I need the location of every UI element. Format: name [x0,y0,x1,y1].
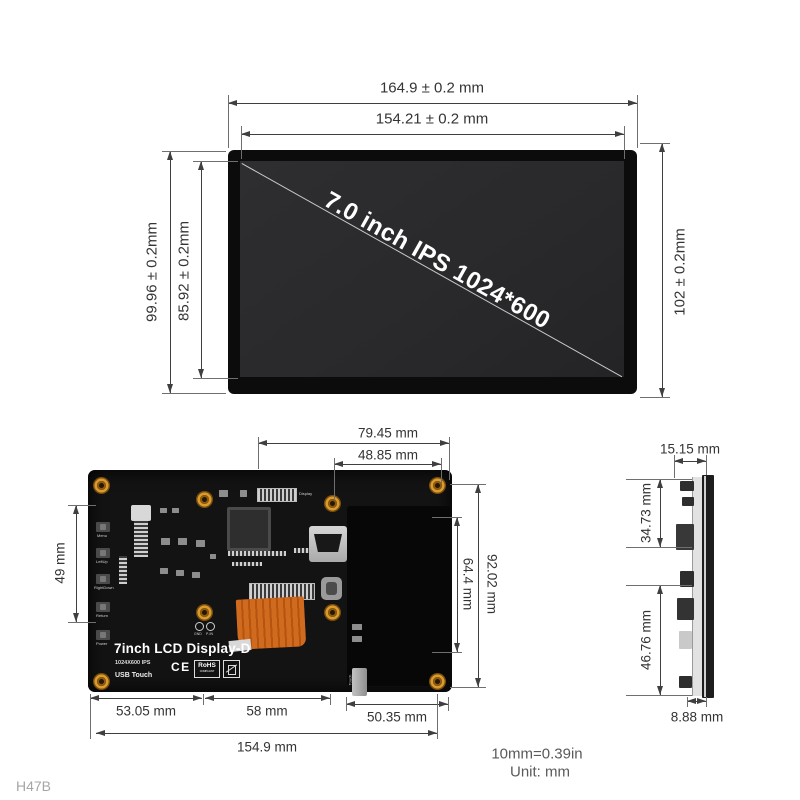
extension-line [432,652,462,653]
side-connector [679,631,692,649]
button-return-label: Return [96,614,108,618]
dim-line-width-inner [241,134,624,135]
pad-row [119,556,127,584]
dim-line-back-bottom-left [90,698,202,699]
smd-part [160,508,167,513]
back-view: Menu LeftUp RightDown Return Power Displ… [0,410,560,800]
dim-label-back-left: 49 mm [53,542,68,583]
hdmi-opening [314,534,342,552]
dim-label-back-top-outer: 79.45 mm [358,426,418,441]
side-connector [677,598,694,620]
standoff [324,495,341,512]
weee-mark [223,660,240,678]
rohs-text: RoHS [195,661,219,670]
dim-line-back-top-inner [334,464,441,465]
button-power [96,630,110,640]
extension-line [624,126,625,159]
extension-line [637,95,638,148]
button-power-label: Power [96,642,107,646]
dim-label-height-right: 102 ± 0.2mm [672,228,689,315]
smd-part [352,624,362,630]
side-view: 15.15 mm 34.73 mm 46.76 mm 8.88 mm [600,410,800,800]
dim-label-side-bottom: 8.88 mm [671,710,724,725]
extension-line [441,458,442,483]
dim-line-back-bottom-right [346,704,448,705]
gnd-label: GND [194,632,202,636]
dim-line-height-outer-left [170,151,171,393]
lcd-panel-back [347,506,450,686]
button-up [96,548,110,558]
dim-line-width-outer [228,103,637,104]
button-menu-label: Menu [97,534,107,538]
button-up-label: LeftUp [96,560,108,564]
dim-line-height-inner-left [201,161,202,378]
dim-line-side-bottom [687,701,706,702]
dim-label-height-outer-left: 99.96 ± 0.2mm [144,222,161,322]
extension-line [640,397,670,398]
extension-line [162,151,226,152]
extension-line [258,437,259,469]
button-menu [96,522,110,532]
footnote-unit: Unit: mm [510,764,570,781]
dim-label-width-outer: 164.9 ± 0.2 mm [380,80,484,97]
product-dimension-diagram: 7.0 inch IPS 1024*600 164.9 ± 0.2 mm 154… [0,0,800,800]
dim-line-back-bottom-mid [205,698,330,699]
extension-line [626,547,692,548]
extension-line [448,697,449,711]
dim-line-side-upper [660,479,661,547]
side-panel-highlight [704,476,706,697]
side-connector [680,481,694,491]
extension-line [193,161,238,162]
dim-line-back-right-inner [457,517,458,652]
dim-line-side-lower [660,585,661,695]
dim-line-back-right-outer [478,484,479,687]
board-touch: USB Touch [115,672,152,679]
dim-label-back-bottom-total: 154.9 mm [237,740,297,755]
standoff [324,604,341,621]
dim-label-width-inner: 154.21 ± 0.2 mm [376,111,488,128]
backlight-connector [131,505,151,521]
touch-usb-label: Touch [348,675,352,686]
extension-line [90,694,91,739]
extension-line [450,687,486,688]
extension-line [162,393,226,394]
extension-line [334,458,335,500]
rohs-sub-text: COMPLIANT [195,670,219,673]
dim-label-back-bottom-left: 53.05 mm [116,704,176,719]
front-view: 7.0 inch IPS 1024*600 164.9 ± 0.2 mm 154… [0,0,800,430]
dim-line-height-right [662,143,663,397]
rohs-mark: RoHS COMPLIANT [194,660,220,678]
standoff [93,673,110,690]
smd-part [210,554,216,559]
smd-part [176,570,184,576]
pad-row [232,562,262,566]
dim-label-side-upper: 34.73 mm [639,483,654,543]
ce-mark: CE [171,660,191,674]
pin-pad [206,622,215,631]
dim-label-back-bottom-right: 50.35 mm [367,710,427,725]
display-fpc-label: Display [299,492,312,496]
extension-line [432,517,462,518]
dim-label-side-lower: 46.76 mm [639,610,654,670]
button-down [96,574,110,584]
extension-line [640,143,670,144]
standoff [93,477,110,494]
smd-part [172,508,179,513]
extension-line [450,484,486,485]
smd-part [161,538,170,545]
extension-line [626,479,692,480]
standoff [196,604,213,621]
button-down-label: RightDown [94,586,114,590]
standoff [196,491,213,508]
extension-line [437,694,438,739]
extension-line [241,126,242,159]
side-connector [679,676,692,688]
extension-line [674,455,675,478]
smd-part [196,540,205,547]
side-connector [682,497,694,506]
extension-line [203,694,204,705]
touch-usb-port [352,668,367,696]
dim-label-back-bottom-mid: 58 mm [246,704,287,719]
extension-line [449,437,450,480]
footnote-conversion: 10mm=0.39in [491,746,582,763]
extension-line [228,95,229,148]
dim-label-side-top: 15.15 mm [660,442,720,457]
dim-label-height-inner-left: 85.92 ± 0.2mm [176,221,193,321]
dim-line-side-top [674,461,706,462]
smd-part [219,490,228,497]
smd-part [160,568,168,574]
dim-label-back-top-inner: 48.85 mm [358,448,418,463]
extension-line [193,378,238,379]
extension-line [706,697,707,707]
driver-chip [227,507,271,551]
smd-part [178,538,187,545]
pad-row [228,551,286,556]
dim-label-back-right-inner: 64.4 mm [461,558,476,611]
extension-line [626,585,692,586]
extension-line [68,622,96,623]
smd-part [240,490,247,497]
dim-label-back-right-outer: 92.02 mm [485,554,500,614]
dim-line-back-left [76,505,77,622]
standoff [429,673,446,690]
pin-label: P-IN [206,632,213,636]
board-resolution: 1024X600 IPS [115,660,150,666]
display-fpc-connector [257,488,297,502]
extension-line [68,505,96,506]
standoff [429,477,446,494]
extension-line [330,694,331,705]
extension-line [687,697,688,707]
dim-line-back-bottom-total [96,733,437,734]
watermark: H47B [16,778,51,794]
board-title: 7inch LCD Display-D [114,641,251,656]
dim-line-back-top-outer [258,443,449,444]
extension-line [346,697,347,711]
smd-part [352,636,362,642]
gnd-pad [195,622,204,631]
smd-part [192,572,200,578]
extension-line [626,695,692,696]
usb-c-slot [326,582,337,595]
backlight-cable [134,521,148,557]
button-return [96,602,110,612]
